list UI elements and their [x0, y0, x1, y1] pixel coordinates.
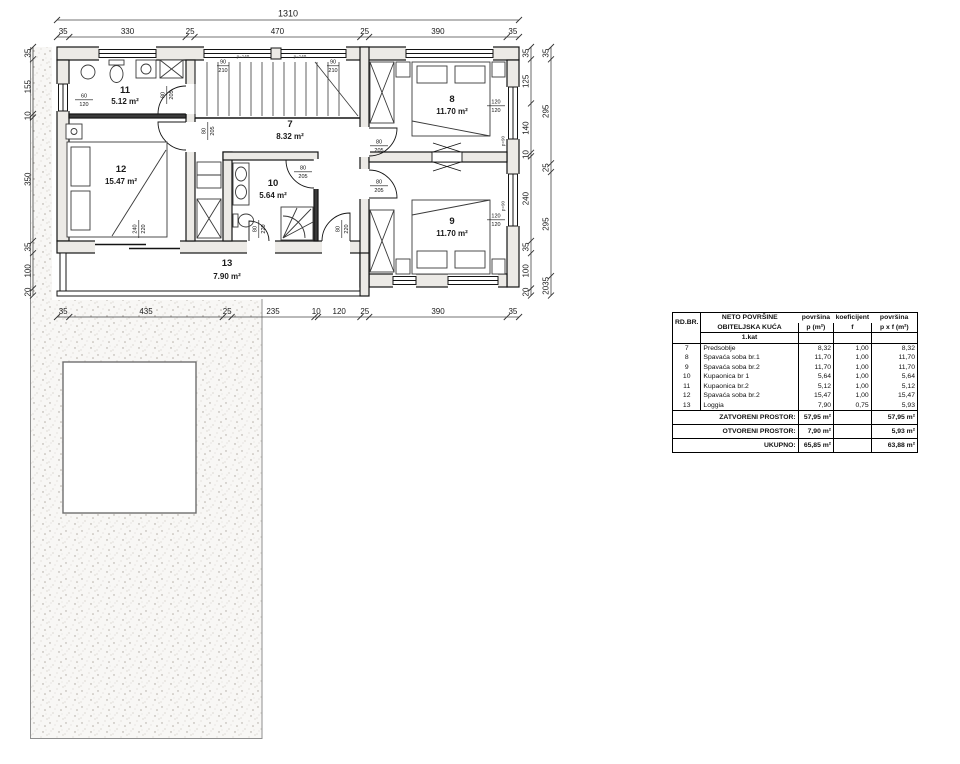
opening-label-d10: 80205 [294, 166, 312, 181]
dim-label: 295 [542, 104, 551, 118]
dim-label: 20 [522, 287, 531, 296]
room-12-area: 15.47 m² [105, 177, 137, 186]
nightstand [396, 62, 410, 77]
opening-label-top: 80 [336, 226, 342, 232]
table-row: 10Kupaonica br 15,641,005,64 [673, 372, 918, 382]
window-room11-left [59, 84, 68, 111]
table-cell-p: 8,32 [798, 343, 833, 353]
nightstand [492, 259, 505, 274]
table-section-spacer [673, 333, 701, 344]
opening-label-top: 60 [81, 94, 87, 100]
table-total-label: UKUPNO: [673, 439, 799, 453]
nightstand [396, 259, 410, 274]
dim-label: 100 [24, 264, 33, 278]
table-header-povrsina2: površina [871, 313, 917, 323]
pillow [417, 66, 447, 83]
table-cell-pf: 11,70 [871, 363, 917, 373]
table-header-povrsina: površina [798, 313, 833, 323]
terrain-white-rectangle [63, 362, 196, 513]
parapet-label-p90b: p=90 [501, 200, 506, 211]
parapet-label-p140a: p=140 [237, 54, 250, 59]
dim-label: 35 [59, 307, 68, 316]
table-cell-no: 12 [673, 391, 701, 401]
opening-label-bottom: 205 [374, 148, 383, 154]
opening-label-top: 80 [376, 140, 382, 146]
room-10-number: 10 [268, 178, 279, 189]
opening-label-top: 80 [202, 128, 208, 134]
pillow [71, 147, 90, 186]
nightstand [66, 124, 82, 139]
opening-label-d12: 80205 [202, 122, 217, 140]
opening-label-dl2: 80220 [336, 220, 351, 238]
table-cell-pf: 5,12 [871, 382, 917, 392]
pillow [455, 66, 485, 83]
table-cell-no: 9 [673, 363, 701, 373]
table-cell-name: Spavaća soba br.2 [701, 363, 798, 373]
table-cell-no: 11 [673, 382, 701, 392]
dim-label: 350 [24, 172, 33, 186]
table-cell-pf: 15,47 [871, 391, 917, 401]
opening-label-top: 240 [133, 224, 139, 233]
window-room11-top [99, 50, 156, 58]
table-total-label: OTVORENI PROSTOR: [673, 425, 799, 439]
toilet [239, 214, 254, 227]
dim-label: 10 [312, 307, 321, 316]
room-12-number: 12 [116, 164, 127, 175]
table-cell-f: 1,00 [834, 372, 872, 382]
dim-label: 35 [24, 242, 33, 251]
table-total-row: UKUPNO:65,85 m²63,88 m² [673, 439, 918, 453]
table-cell-p: 11,70 [798, 363, 833, 373]
opening-label-top: 90 [330, 60, 336, 66]
table-cell-pf: 11,70 [871, 353, 917, 363]
wall-loggia-left [60, 253, 66, 291]
opening-label-bottom: 120 [491, 222, 500, 228]
table-cell-p: 5,12 [798, 382, 833, 392]
table-total-pf: 57,95 m² [871, 411, 917, 425]
table-header-neto: NETO POVRŠINE [701, 313, 798, 323]
table-cell-pf: 5,93 [871, 401, 917, 411]
window-room8-top [406, 50, 493, 58]
furniture-hall-closets [197, 162, 221, 238]
wall-loggia-parapet [57, 291, 360, 296]
toilet [110, 66, 123, 83]
dim-label: 35 [542, 48, 551, 57]
table-total-row: ZATVORENI PROSTOR:57,95 m²57,95 m² [673, 411, 918, 425]
opening-label-bottom: 205 [374, 188, 383, 194]
dim-label: 25 [223, 307, 232, 316]
opening-label-top: 120 [491, 100, 500, 106]
table-section-floor: 1.kat [701, 333, 798, 344]
vent-shaft [432, 143, 462, 171]
room-11-area: 5.12 m² [111, 97, 139, 106]
opening-label-bottom: 210 [218, 68, 227, 74]
dim-label: 35 [522, 242, 531, 251]
opening-label-top: 90 [220, 60, 226, 66]
table-row: 12Spavaća soba br.215,471,0015,47 [673, 391, 918, 401]
window-staircase [204, 48, 346, 59]
room-8-number: 8 [449, 94, 454, 105]
washer [136, 60, 156, 78]
dim-label: 25 [542, 163, 551, 172]
toilet-tank [109, 60, 124, 65]
opening-label-bottom: 205 [210, 126, 216, 135]
opening-label-bottom: 220 [344, 224, 350, 233]
opening-label-bottom: 210 [328, 68, 337, 74]
table-cell-name: Kupaonica br 1 [701, 372, 798, 382]
table-cell-p: 7,90 [798, 401, 833, 411]
table-cell-f: 1,00 [834, 363, 872, 373]
dim-top: 35330254702539035 [54, 27, 522, 40]
opening-label-ws1: 90210 [217, 60, 229, 75]
table-total-label: ZATVORENI PROSTOR: [673, 411, 799, 425]
opening-label-top: 80 [161, 92, 167, 98]
table-cell-f: 1,00 [834, 382, 872, 392]
page: 11 5.12 m² 12 15.47 m² 7 8.32 m² 10 5.64… [0, 0, 960, 764]
wall-loggia-right [360, 253, 369, 296]
table-header-koeficijent: koeficijent [834, 313, 872, 323]
table-header-rdbr: RD.BR. [673, 313, 701, 333]
table-row: 8Spavaća soba br.111,701,0011,70 [673, 353, 918, 363]
opening-label-dl1: 80220 [253, 220, 268, 238]
table-row: 9Spavaća soba br.211,701,0011,70 [673, 363, 918, 373]
room-11-number: 11 [120, 85, 131, 96]
dim-top-total: 1310 [54, 9, 522, 24]
dim-label: 35 [522, 48, 531, 57]
opening-label-top: 80 [376, 180, 382, 186]
dim-label: 155 [24, 79, 33, 93]
pillow [71, 191, 90, 230]
table-total-p: 65,85 m² [798, 439, 833, 453]
dim-label: 140 [522, 121, 531, 135]
dim-label: 35 [24, 48, 33, 57]
table-total-row: OTVORENI PROSTOR:7,90 m²5,93 m² [673, 425, 918, 439]
dim-label: 240 [522, 191, 531, 205]
room-7-area: 8.32 m² [276, 132, 304, 141]
dim-label: 100 [522, 264, 531, 278]
opening-label-top: 80 [300, 166, 306, 172]
dim-label: 20 [24, 287, 33, 296]
table-cell-name: Loggia [701, 401, 798, 411]
pillow [455, 251, 485, 268]
opening-label-bottom: 220 [261, 224, 267, 233]
window-room9-bottom-a [393, 277, 416, 285]
dim-total-label: 1310 [278, 9, 298, 19]
table-cell-no: 10 [673, 372, 701, 382]
wall-room11-12 [69, 114, 186, 118]
dim-label: 35 [59, 27, 68, 36]
dim-label: 35 [508, 307, 517, 316]
room-13-area: 7.90 m² [213, 272, 241, 281]
window-room9-bottom-b [448, 277, 498, 285]
table-cell-no: 8 [673, 353, 701, 363]
dim-label: 120 [333, 307, 347, 316]
table-total-p: 57,95 m² [798, 411, 833, 425]
opening-label-bottom: 220 [141, 224, 147, 233]
table-cell-f: 1,00 [834, 391, 872, 401]
table-total-spacer [834, 411, 872, 425]
washbasin [81, 65, 95, 79]
window-room9-right [509, 174, 518, 226]
dim-label: 390 [431, 307, 445, 316]
dim-label: 25 [186, 27, 195, 36]
opening-label-w11: 60120 [75, 94, 93, 109]
opening-label-bottom: 120 [79, 102, 88, 108]
table-header-p: p (m²) [798, 323, 833, 333]
table-header-house: OBITELJSKA KUĆA [701, 323, 798, 333]
dim-label: 235 [266, 307, 280, 316]
table-cell-name: Kupaonica br.2 [701, 382, 798, 392]
dim-label: 435 [139, 307, 153, 316]
room-9-area: 11.70 m² [436, 229, 468, 238]
table-header-f: f [834, 323, 872, 333]
table-cell-no: 7 [673, 343, 701, 353]
table-total-pf: 63,88 m² [871, 439, 917, 453]
wall-hall-vertical [360, 47, 369, 287]
wall-bath10-left [223, 152, 232, 241]
room-8-area: 11.70 m² [436, 107, 468, 116]
table-row: 13Loggia7,900,755,93 [673, 401, 918, 411]
room-13-number: 13 [222, 258, 233, 269]
table-total-spacer [834, 425, 872, 439]
dim-right-outer: 35295252952035 [542, 44, 555, 299]
dim-label: 10 [522, 150, 531, 159]
areas-table: RD.BR. NETO POVRŠINE površina koeficijen… [672, 312, 918, 453]
dim-label: 2035 [542, 276, 551, 294]
opening-label-d9: 80205 [370, 180, 388, 195]
room-10-area: 5.64 m² [259, 191, 287, 200]
toilet-tank [233, 214, 238, 227]
table-row: 11Kupaonica br.25,121,005,12 [673, 382, 918, 392]
pillow [417, 251, 447, 268]
dim-label: 330 [121, 27, 135, 36]
opening-label-top: 120 [491, 214, 500, 220]
table-cell-name: Predsoblje [701, 343, 798, 353]
wall-bath10-top [223, 152, 318, 160]
table-cell-f: 1,00 [834, 353, 872, 363]
opening-label-ws2: 90210 [327, 60, 339, 75]
dim-label: 470 [271, 27, 285, 36]
table-cell-p: 15,47 [798, 391, 833, 401]
dim-label: 10 [24, 111, 33, 120]
room-9-number: 9 [449, 216, 454, 227]
opening-label-bottom: 120 [491, 108, 500, 114]
table-cell-p: 5,64 [798, 372, 833, 382]
window-room8-right [509, 87, 518, 139]
fixtures-room11 [81, 60, 183, 83]
nightstand [492, 62, 505, 77]
dim-label: 390 [431, 27, 445, 36]
table-cell-f: 0,75 [834, 401, 872, 411]
table-cell-pf: 5,64 [871, 372, 917, 382]
table-cell-name: Spavaća soba br.1 [701, 353, 798, 363]
table-cell-f: 1,00 [834, 343, 872, 353]
table-row: 7Predsoblje8,321,008,32 [673, 343, 918, 353]
table-total-p: 7,90 m² [798, 425, 833, 439]
opening-label-bottom: 205 [298, 174, 307, 180]
opening-label-top: 80 [253, 226, 259, 232]
furniture-room8 [370, 62, 505, 136]
dim-label: 25 [360, 307, 369, 316]
table-total-spacer [834, 439, 872, 453]
dim-right-inner: 35125140102403510020 [522, 44, 535, 299]
opening-label-bottom: 205 [169, 90, 175, 99]
parapet-label-p140b: p=140 [294, 54, 307, 59]
dim-label: 295 [542, 217, 551, 231]
table-header-pf: p x f (m²) [871, 323, 917, 333]
dim-label: 35 [508, 27, 517, 36]
table-cell-name: Spavaća soba br.2 [701, 391, 798, 401]
table-cell-pf: 8,32 [871, 343, 917, 353]
parapet-label-p90a: p=90 [501, 135, 506, 146]
room-7-number: 7 [287, 119, 292, 130]
table-cell-no: 13 [673, 401, 701, 411]
dim-label: 25 [360, 27, 369, 36]
table-total-pf: 5,93 m² [871, 425, 917, 439]
dim-label: 125 [522, 74, 531, 88]
table-cell-p: 11,70 [798, 353, 833, 363]
